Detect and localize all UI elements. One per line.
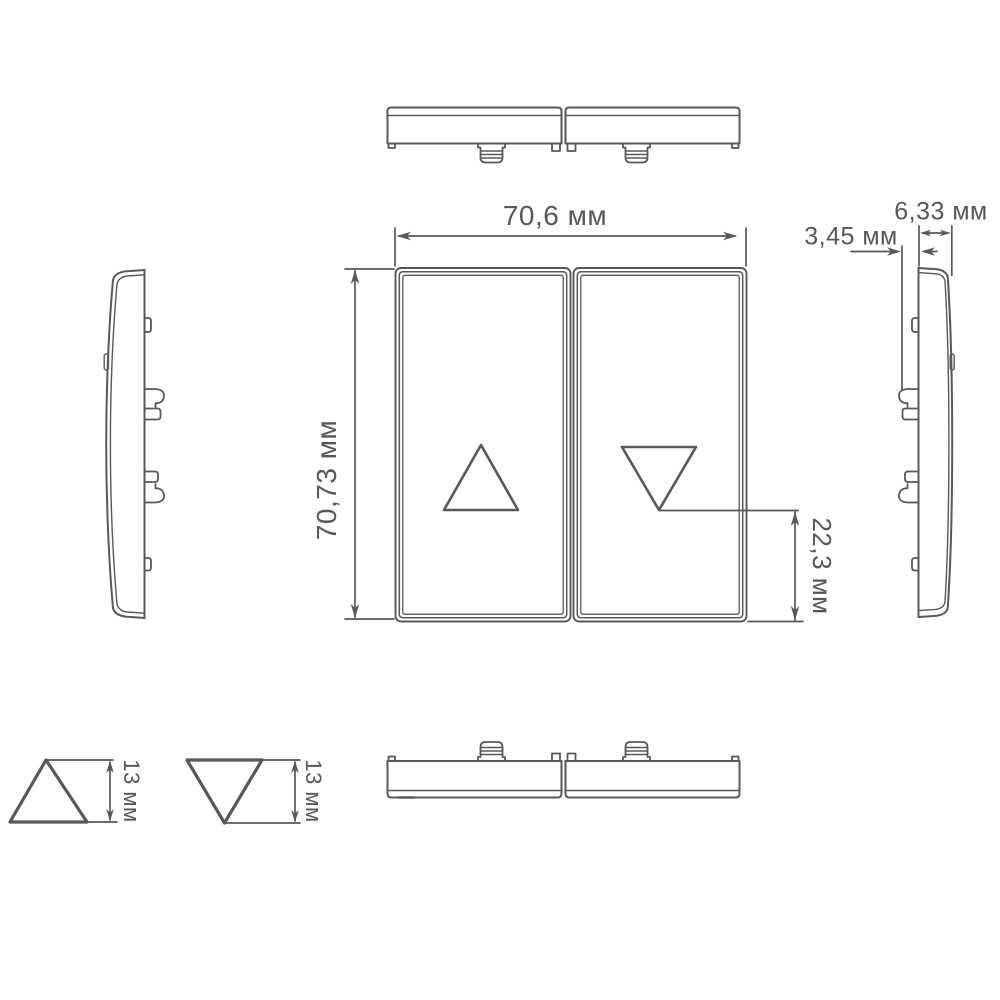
dim-arrow-to-bottom-label: 22,3 мм xyxy=(809,517,835,614)
down-arrow-triangle xyxy=(622,447,696,510)
left-side-view xyxy=(104,270,164,618)
dim-front-height-label: 70,73 мм xyxy=(313,420,341,540)
right-side-view xyxy=(899,268,954,617)
technical-drawing: 70,6 мм 70,73 мм 3,45 мм 6,33 мм 22,3 мм… xyxy=(0,0,1000,1000)
front-view xyxy=(396,268,747,622)
dim-front-width-label: 70,6 мм xyxy=(503,202,607,230)
top-view xyxy=(388,108,740,163)
dim-front-height xyxy=(345,269,394,619)
dim-front-width xyxy=(395,228,746,266)
up-arrow-triangle-detail xyxy=(10,760,117,822)
dim-side-thickness-label: 6,33 мм xyxy=(894,200,987,225)
up-arrow-triangle-large xyxy=(10,760,87,822)
dim-down-arrow-height-label: 13 мм xyxy=(302,759,324,822)
dim-clip-protrusion-label: 3,45 мм xyxy=(804,225,897,250)
dim-arrow-to-bottom xyxy=(659,511,803,622)
down-arrow-triangle-detail xyxy=(187,760,300,823)
bottom-view-clip-right xyxy=(623,742,650,761)
top-view-clip-right xyxy=(623,144,650,163)
top-view-clip-left xyxy=(478,144,505,163)
bottom-view xyxy=(388,742,740,798)
left-side-clips xyxy=(145,318,165,571)
down-arrow-triangle-large xyxy=(187,760,262,823)
up-arrow-triangle xyxy=(444,445,518,510)
bottom-view-clip-left xyxy=(478,742,505,761)
left-side-notch xyxy=(104,354,108,370)
front-rocker-left xyxy=(396,268,571,622)
front-rocker-right xyxy=(574,268,747,622)
dim-up-arrow-height-label: 13 мм xyxy=(120,759,142,822)
drawing-svg xyxy=(0,0,1000,1000)
